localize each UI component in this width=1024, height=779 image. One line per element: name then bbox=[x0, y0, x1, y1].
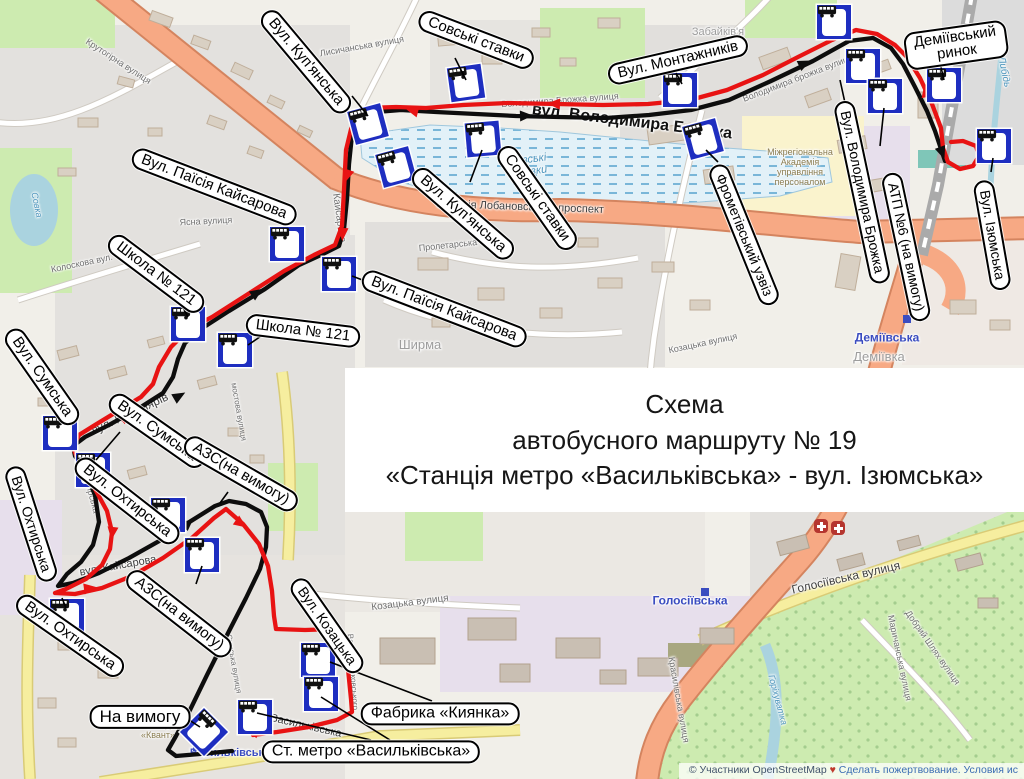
bus-icon bbox=[185, 538, 205, 551]
map-street-label: Ширма bbox=[399, 338, 442, 352]
route-stop-label: Ст. метро «Васильківська» bbox=[262, 740, 480, 763]
bus-stop-panel bbox=[850, 52, 876, 81]
bus-stop-sign bbox=[465, 121, 502, 158]
bus-icon bbox=[304, 677, 324, 690]
bus-stop-panel bbox=[175, 310, 201, 339]
bus-stop-sign bbox=[270, 227, 304, 261]
bus-stop-panel bbox=[380, 150, 413, 185]
bus-stop-sign bbox=[218, 333, 252, 367]
scheme-title-line2: автобусного маршруту № 19 bbox=[512, 426, 857, 455]
bus-stop-panel bbox=[308, 680, 334, 709]
map-canvas[interactable]: Схема автобусного маршруту № 19 «Станція… bbox=[0, 0, 1024, 779]
bus-icon bbox=[846, 49, 866, 62]
bus-icon bbox=[218, 333, 238, 346]
bus-icon bbox=[238, 700, 258, 713]
scheme-title-card: Схема автобусного маршруту № 19 «Станція… bbox=[345, 368, 1024, 512]
osm-copyright-link[interactable]: © Участники OpenStreetMap bbox=[689, 764, 827, 776]
terms-link[interactable]: Условия ис bbox=[964, 764, 1018, 776]
bus-icon bbox=[868, 79, 888, 92]
route-stop-label: На вимогу bbox=[90, 705, 191, 729]
bus-stop-sign bbox=[185, 538, 219, 572]
bus-stop-sign bbox=[846, 49, 880, 83]
bus-stop-panel bbox=[352, 107, 385, 142]
bus-stop-sign bbox=[663, 73, 697, 107]
bus-icon bbox=[663, 73, 683, 86]
scheme-title-line3: «Станція метро «Васильківська» - вул. Із… bbox=[386, 461, 984, 490]
map-street-label: Деміївська bbox=[855, 331, 920, 344]
bus-stop-panel bbox=[189, 541, 215, 570]
bus-stop-panel bbox=[931, 71, 957, 100]
bus-icon bbox=[322, 257, 342, 270]
hospital-icon bbox=[814, 519, 828, 533]
scheme-title-line1: Схема bbox=[645, 390, 723, 419]
hospital-icon bbox=[831, 521, 845, 535]
bus-stop-sign bbox=[817, 5, 851, 39]
bus-stop-panel bbox=[305, 646, 331, 675]
bus-icon bbox=[927, 68, 947, 81]
bus-icon bbox=[447, 66, 469, 82]
map-street-label: Деміївка bbox=[853, 350, 905, 364]
bus-icon bbox=[977, 129, 997, 142]
donate-link[interactable]: Сделать пожертвование. bbox=[839, 764, 961, 776]
bus-stop-panel bbox=[469, 123, 497, 154]
bus-stop-panel bbox=[872, 82, 898, 111]
osm-attribution: © Участники OpenStreetMap ♥ Сделать поже… bbox=[679, 763, 1024, 779]
bus-stop-panel bbox=[274, 230, 300, 259]
bus-stop-sign bbox=[322, 257, 356, 291]
bus-stop-sign bbox=[977, 129, 1011, 163]
bus-icon bbox=[270, 227, 290, 240]
bus-stop-panel bbox=[821, 8, 847, 37]
bus-icon bbox=[301, 643, 321, 656]
bus-stop-sign bbox=[238, 700, 272, 734]
bus-stop-panel bbox=[222, 336, 248, 365]
map-street-label: Голосіївська bbox=[652, 594, 727, 607]
metro-icon bbox=[701, 588, 709, 596]
bus-stop-panel bbox=[667, 76, 693, 105]
bus-stop-sign bbox=[447, 64, 485, 102]
bus-icon bbox=[465, 122, 486, 137]
bus-stop-sign bbox=[304, 677, 338, 711]
route-stop-label: Фабрика «Киянка» bbox=[361, 702, 520, 725]
bus-stop-panel bbox=[687, 122, 720, 157]
bus-stop-panel bbox=[451, 67, 481, 99]
bus-stop-sign bbox=[868, 79, 902, 113]
bus-stop-panel bbox=[242, 703, 268, 732]
bus-stop-panel bbox=[326, 260, 352, 289]
bus-stop-panel bbox=[981, 132, 1007, 161]
bus-icon bbox=[817, 5, 837, 18]
map-street-label: Міжрегіональна Академія управління персо… bbox=[767, 148, 833, 188]
bus-stop-sign bbox=[927, 68, 961, 102]
heart-icon: ♥ bbox=[830, 764, 836, 776]
